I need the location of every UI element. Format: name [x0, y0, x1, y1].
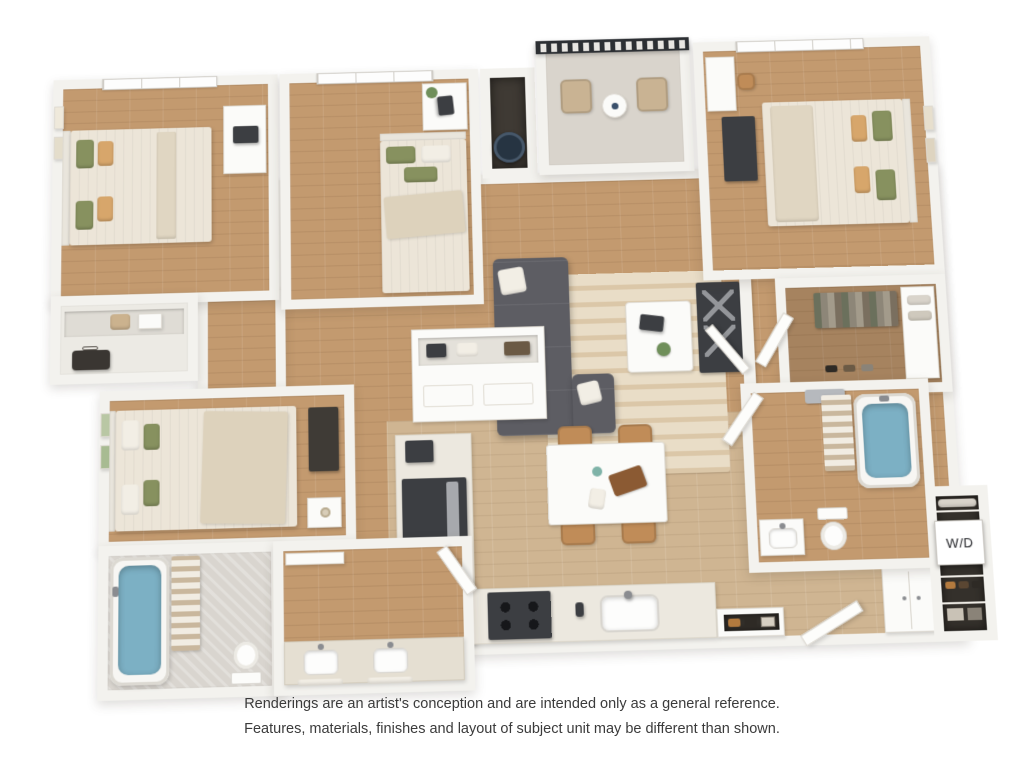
toilet-bowl: [820, 521, 848, 550]
laptop: [233, 126, 259, 144]
shoe-cabinet: [716, 607, 785, 638]
pillow: [850, 115, 867, 142]
folded-linens: [908, 310, 932, 320]
lamp: [320, 507, 330, 517]
wine-rack: [504, 341, 530, 355]
bed-blanket-fold: [770, 105, 819, 222]
vanity-room-door: [437, 545, 478, 595]
laundry-closet: W/D: [925, 485, 998, 642]
sink: [768, 528, 797, 549]
disclaimer-line-2: Features, materials, finishes and layout…: [0, 717, 1024, 742]
bedroom-3: [693, 36, 945, 280]
dining-table: [546, 442, 668, 526]
utility-closet: [480, 67, 538, 178]
balcony-chair: [560, 79, 592, 114]
dresser: [308, 407, 339, 472]
bathtub-water: [118, 565, 161, 676]
coffee-table: [625, 300, 694, 373]
cutting-board: [608, 465, 648, 497]
stove: [487, 591, 552, 640]
balcony-chair: [636, 77, 669, 112]
disclaimer: Renderings are an artist's conception an…: [0, 692, 1024, 742]
pillow: [121, 420, 139, 450]
shower-curtain: [171, 556, 200, 651]
double-vanity: [284, 637, 465, 686]
toilet: [229, 638, 264, 685]
art-frame: [925, 138, 936, 163]
pillow: [872, 110, 893, 141]
toilet: [815, 507, 852, 555]
floor-plan-rendering: W/D: [40, 32, 1004, 688]
pillow: [875, 169, 897, 200]
faucet: [779, 523, 785, 529]
mug: [592, 466, 602, 476]
suitcase-handle: [82, 346, 98, 350]
bathroom-1-tub-room: [97, 541, 282, 701]
floor-plan-page: W/D: [0, 0, 1024, 768]
laptop: [437, 95, 455, 115]
pepper-grinder: [575, 602, 584, 617]
pillow: [98, 141, 114, 166]
shoes: [825, 365, 837, 372]
napkin: [588, 488, 607, 510]
bedroom-1-window: [102, 76, 217, 90]
pillow: [143, 480, 159, 507]
shoes: [972, 581, 983, 588]
storage-box: [947, 608, 964, 621]
dresser: [721, 116, 757, 181]
water-heater: [493, 132, 525, 163]
console-x-detail: [702, 289, 735, 321]
bedroom-1: [51, 74, 280, 306]
toilet-bowl: [233, 640, 260, 670]
bedroom-3-window: [735, 38, 864, 53]
storage-box: [967, 607, 982, 620]
washer-dryer-label: W/D: [946, 534, 974, 550]
cabinet-door-line: [908, 571, 913, 629]
shoes: [945, 581, 956, 588]
closet-shelf-edge: [942, 601, 985, 604]
shoes: [728, 618, 741, 627]
balcony-railing: [535, 37, 689, 54]
cup: [612, 103, 619, 110]
bathtub: [110, 556, 170, 686]
cabinet-drawer-line: [483, 382, 534, 405]
closet-shelf-edge: [941, 575, 984, 578]
shoes: [861, 364, 873, 371]
shoe-cabinet-opening: [724, 613, 780, 631]
disclaimer-line-1: Renderings are an artist's conception an…: [0, 692, 1024, 717]
bathtub-water: [861, 403, 912, 478]
balcony-table: [601, 93, 627, 118]
art-frame: [923, 106, 934, 131]
closet-shelf-edge: [936, 509, 979, 512]
dishes: [456, 343, 478, 357]
bathroom-2: [740, 378, 940, 572]
balcony: [535, 39, 694, 175]
pillow: [76, 140, 94, 169]
pillow: [75, 201, 93, 230]
toilet-tank: [231, 671, 262, 684]
pillow: [421, 145, 451, 163]
shower-curtain: [821, 395, 855, 472]
tub-faucet: [879, 395, 889, 401]
bed-blanket-fold: [200, 411, 288, 524]
tub-faucet: [112, 587, 118, 597]
laptop: [639, 314, 664, 332]
shoes: [958, 581, 969, 588]
towel: [367, 676, 412, 684]
nightstand: [307, 497, 342, 528]
closet-shelf-unit: [900, 286, 940, 379]
storage-box: [138, 313, 162, 329]
folded-linens: [907, 295, 931, 305]
shoes: [744, 618, 757, 627]
pillow: [853, 166, 870, 193]
pillow: [121, 484, 139, 515]
bed-blanket-fold: [156, 132, 176, 240]
towel: [298, 678, 343, 686]
hanging-clothes: [813, 291, 898, 328]
art-frame: [54, 106, 64, 129]
cabinet-drawer-line: [423, 384, 474, 407]
pillow: [144, 424, 160, 450]
closet-bedroom-1: [50, 292, 198, 384]
desk: [705, 56, 737, 111]
cabinet-knob: [902, 596, 906, 600]
washer-dryer-unit: W/D: [934, 519, 986, 565]
coffee-maker: [405, 440, 434, 463]
cabinet-knob: [916, 596, 920, 600]
sink: [303, 649, 338, 675]
desk-chair: [737, 73, 755, 90]
mirror-panel: [285, 552, 344, 566]
shoes: [843, 365, 855, 372]
sink: [373, 647, 408, 673]
suitcase: [72, 350, 110, 371]
bedroom-2-window: [316, 70, 433, 84]
glassware: [426, 343, 446, 357]
toilet-tank: [817, 507, 848, 520]
bar-shelf-unit: [411, 326, 547, 423]
bathroom-1-vanity-room: [273, 536, 475, 696]
pillow: [97, 196, 113, 221]
bedroom-2: [280, 69, 484, 310]
hallway-left: [198, 290, 286, 399]
sofa-pillow: [497, 266, 527, 296]
tray: [761, 616, 776, 627]
pillow: [404, 166, 438, 182]
pillow: [386, 146, 416, 164]
bag: [110, 314, 130, 330]
bed-blanket-fold: [383, 190, 465, 240]
kitchen-sink: [600, 594, 661, 633]
bathtub: [853, 393, 921, 489]
bedroom-4: [98, 384, 356, 552]
folded-linens: [938, 498, 977, 507]
bathroom-vanity: [759, 518, 805, 556]
